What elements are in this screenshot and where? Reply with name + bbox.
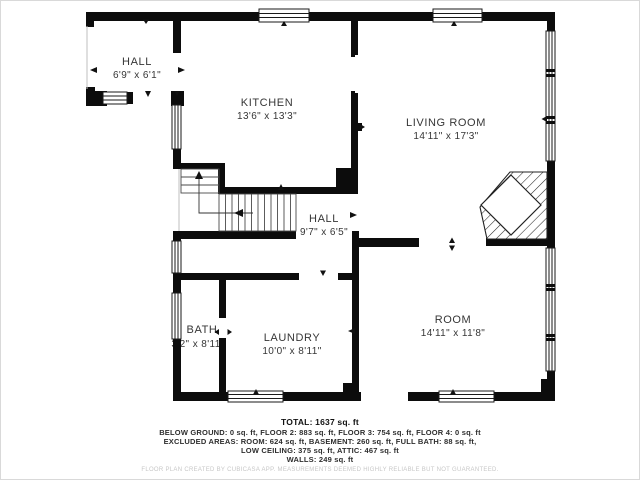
fireplace bbox=[480, 172, 547, 239]
floor-plan-drawing bbox=[1, 1, 640, 415]
summary-line: BELOW GROUND: 0 sq. ft, FLOOR 2: 883 sq.… bbox=[159, 428, 481, 437]
window bbox=[546, 31, 555, 161]
total-area-text: TOTAL: 1637 sq. ft bbox=[281, 418, 359, 428]
disclaimer-text: FLOOR PLAN CREATED BY CUBICASA APP. MEAS… bbox=[141, 467, 498, 473]
window bbox=[172, 241, 181, 273]
summary-line: WALLS: 249 sq. ft bbox=[287, 455, 354, 464]
window bbox=[103, 92, 127, 104]
area-summary: TOTAL: 1637 sq. ft BELOW GROUND: 0 sq. f… bbox=[1, 418, 639, 473]
floor-plan-page: HALL 6'9" x 6'1" KITCHEN 13'6" x 13'3" L… bbox=[0, 0, 640, 480]
window bbox=[439, 391, 494, 402]
window bbox=[172, 293, 181, 339]
door-markers bbox=[90, 20, 547, 395]
summary-line: LOW CEILING: 375 sq. ft, ATTIC: 467 sq. … bbox=[241, 446, 399, 455]
window bbox=[259, 9, 309, 22]
window bbox=[546, 248, 555, 371]
open-edge-lines bbox=[87, 26, 179, 231]
summary-line: EXCLUDED AREAS: ROOM: 624 sq. ft, BASEME… bbox=[164, 437, 477, 446]
window bbox=[172, 105, 181, 149]
window bbox=[433, 9, 482, 22]
